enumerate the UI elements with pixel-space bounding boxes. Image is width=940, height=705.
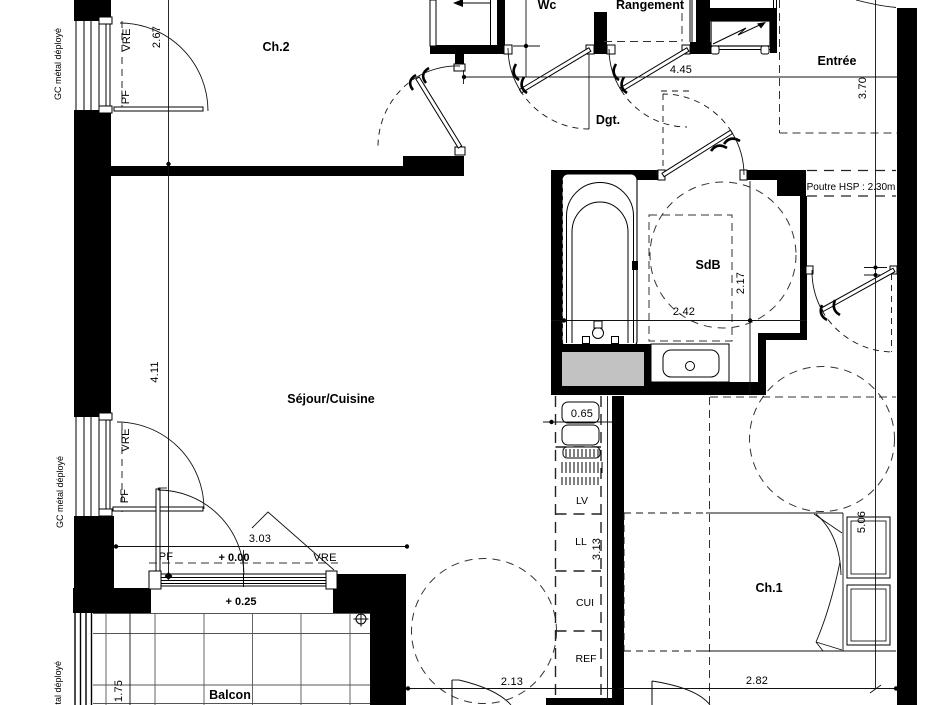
svg-text:4.45: 4.45 [670,64,692,76]
svg-text:2.17: 2.17 [735,272,747,294]
svg-text:Poutre HSP : 2.30m: Poutre HSP : 2.30m [807,182,896,193]
svg-text:Ch.1: Ch.1 [755,581,782,595]
svg-text:Dgt.: Dgt. [596,113,620,127]
svg-text:3.70: 3.70 [857,77,869,99]
svg-text:Balcon: Balcon [209,688,251,702]
svg-text:VRE: VRE [313,552,336,564]
svg-text:CUI: CUI [576,597,594,609]
svg-text:+ 0.25: + 0.25 [226,596,257,608]
svg-text:PF: PF [159,551,174,563]
svg-text:2.42: 2.42 [673,306,695,318]
svg-text:Ch.2: Ch.2 [262,40,289,54]
svg-text:GC métal déployé: GC métal déployé [53,661,63,705]
svg-text:SdB: SdB [696,258,721,272]
svg-text:VRE: VRE [120,428,132,451]
svg-text:2.67: 2.67 [151,26,163,48]
svg-text:LL: LL [575,536,587,548]
svg-text:5.06: 5.06 [856,511,868,533]
svg-text:Séjour/Cuisine: Séjour/Cuisine [287,392,375,406]
svg-text:3.03: 3.03 [249,533,271,545]
svg-text:1.75: 1.75 [113,680,125,702]
svg-text:Entrée: Entrée [818,54,857,68]
svg-text:GC métal déployé: GC métal déployé [53,28,63,100]
svg-text:2.82: 2.82 [746,675,768,687]
svg-text:VRE: VRE [121,28,133,51]
svg-text:PF: PF [119,489,131,504]
svg-text:Wc: Wc [538,0,557,12]
svg-text:2.13: 2.13 [501,676,523,688]
svg-text:GC métal déployé: GC métal déployé [55,456,65,528]
svg-text:Rangement: Rangement [616,0,685,12]
svg-text:REF: REF [576,653,597,665]
svg-text:4.11: 4.11 [149,361,161,382]
svg-text:0.65: 0.65 [571,408,593,420]
svg-text:LV: LV [576,495,588,507]
svg-text:3.13: 3.13 [591,538,603,560]
svg-text:PF: PF [120,90,132,105]
svg-text:+ 0.00: + 0.00 [219,552,250,564]
